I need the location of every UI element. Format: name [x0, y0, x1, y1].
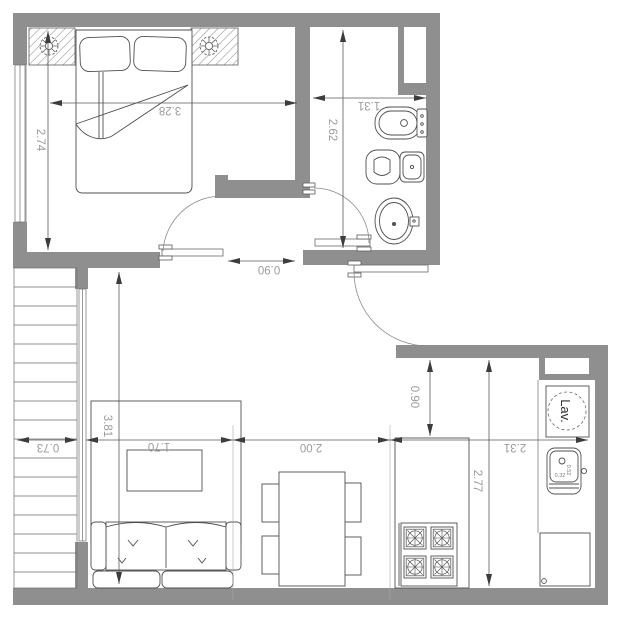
dim-label: 2.00	[300, 441, 322, 453]
bathroom-door	[303, 183, 371, 251]
ceiling-rosette-left-icon	[40, 37, 58, 55]
dim-bathroom-depth: 2.62	[326, 30, 343, 248]
cabinet-knob-icon	[542, 579, 547, 584]
laundry-label: Lav.	[558, 399, 573, 423]
staircase	[14, 268, 86, 588]
dim-kitchen-depth: 2.77	[471, 360, 489, 586]
floor-plan-drawing: 3.28 2.74 2.62 1.31 0.90 0.73 1.70 2.00	[0, 0, 632, 632]
wall-bath-right	[426, 13, 440, 265]
dim-label: 2.77	[471, 470, 483, 492]
kitchen-island	[395, 438, 469, 588]
bedroom-door-swing-arc	[163, 196, 222, 251]
dim-rug-width: 1.70	[86, 440, 233, 452]
dim-bedroom-door-width: 0.90	[228, 261, 295, 275]
dim-label: 2.74	[34, 129, 46, 152]
sofa-icon	[91, 522, 241, 588]
wall-top	[13, 13, 440, 27]
dim-stairs-width: 0.73	[17, 440, 77, 453]
bathroom-door-leaf	[315, 239, 370, 246]
dim-dining-width: 2.00	[233, 440, 390, 453]
living-room	[91, 401, 361, 588]
tv-table-icon	[127, 450, 202, 491]
toilet-icon	[366, 150, 424, 184]
dim-label: 2.31	[504, 441, 526, 453]
wall-partition-bed-bath	[295, 13, 310, 183]
wall-bath-bottom	[303, 250, 440, 265]
dim-label: 1.70	[148, 440, 170, 452]
bathroom-sink-icon	[375, 198, 419, 244]
kitchen-cabinet-icon	[540, 533, 590, 586]
entry-door	[348, 261, 428, 346]
bedroom	[15, 28, 238, 260]
entry-door-leaf	[354, 265, 428, 272]
dim-label: 0.73	[37, 441, 59, 453]
dim-sink-width: 0.32	[555, 473, 566, 479]
dim-label: 2.62	[326, 119, 338, 141]
bedroom-door-leaf	[162, 249, 223, 256]
wall-bath-niche-sill	[398, 83, 426, 95]
stair-steps	[14, 287, 77, 572]
window-icon	[15, 65, 26, 222]
dining-set	[262, 472, 361, 586]
wall-left-upper	[13, 13, 27, 65]
dim-label: 1.31	[358, 99, 380, 111]
ceiling-rosette-right-icon	[200, 37, 218, 55]
dim-label: 3.28	[159, 104, 181, 116]
dim-label: 0.90	[408, 386, 420, 408]
bathroom	[303, 107, 427, 251]
dim-label: 0.90	[258, 263, 280, 275]
bedroom-door	[159, 196, 223, 260]
dim-kitchen-passage: 0.90	[408, 360, 430, 436]
wall-bottom	[13, 588, 608, 605]
wall-kitchen-top	[396, 345, 608, 358]
dim-sink-depth: 0.52	[565, 465, 571, 476]
bidet-icon	[375, 107, 427, 139]
wall-kitchen-niche-right	[589, 358, 595, 380]
dim-label: 3.81	[101, 415, 113, 437]
floor-plan-canvas: 3.28 2.74 2.62 1.31 0.90 0.73 1.70 2.00	[0, 0, 632, 632]
wall-kitchen-right	[595, 345, 608, 598]
wall-kitchen-niche-sill	[539, 374, 595, 380]
dining-table-icon	[279, 472, 345, 586]
entry-door-swing-arc	[354, 272, 428, 346]
